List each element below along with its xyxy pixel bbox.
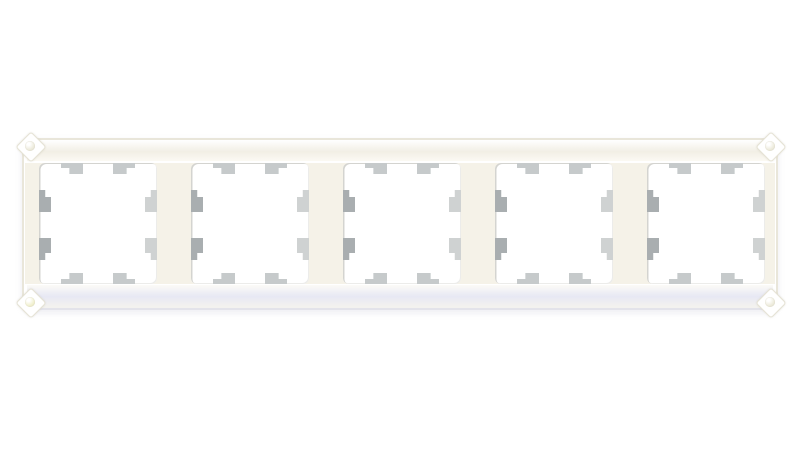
frame-opening (495, 163, 613, 284)
mounting-tab-bottom-right (569, 273, 591, 284)
mounting-tab-bottom-left (517, 273, 539, 284)
mounting-tab-bottom-right (265, 273, 287, 284)
corner-dimple-icon (765, 141, 775, 151)
mounting-tab-left-lower (39, 238, 51, 260)
corner-chamfer (15, 287, 46, 318)
mounting-tab-left-lower (647, 238, 659, 260)
mounting-tab-top-right (265, 163, 287, 174)
corner-dimple-icon (25, 141, 35, 151)
corner-dimple-icon (765, 297, 775, 307)
corner-dimple-icon (25, 297, 35, 307)
mounting-tab-left-upper (647, 190, 659, 212)
mounting-tab-left-upper (343, 190, 355, 212)
mounting-tab-left-upper (191, 190, 203, 212)
mounting-tab-right-upper (145, 190, 157, 212)
mounting-tab-right-upper (449, 190, 461, 212)
mounting-tab-right-lower (145, 238, 157, 260)
corner-ornament-top-right (755, 131, 785, 161)
mounting-tab-top-left (517, 163, 539, 174)
mounting-tab-top-right (569, 163, 591, 174)
mounting-tab-right-upper (601, 190, 613, 212)
mounting-tab-bottom-left (61, 273, 83, 284)
mounting-tab-left-upper (39, 190, 51, 212)
mounting-tab-left-lower (191, 238, 203, 260)
mounting-tab-top-right (417, 163, 439, 174)
corner-chamfer (755, 131, 786, 162)
product-photo (0, 0, 800, 450)
mounting-tab-right-lower (449, 238, 461, 260)
mounting-tab-top-left (669, 163, 691, 174)
mounting-tab-top-left (61, 163, 83, 174)
mounting-tab-left-lower (343, 238, 355, 260)
mounting-tab-bottom-right (721, 273, 743, 284)
frame-opening (343, 163, 461, 284)
corner-ornament-bottom-right (755, 287, 785, 317)
mounting-tab-right-upper (297, 190, 309, 212)
switch-frame (22, 138, 778, 310)
mounting-tab-bottom-left (365, 273, 387, 284)
mounting-tab-bottom-right (113, 273, 135, 284)
corner-ornament-top-left (15, 131, 45, 161)
mounting-tab-right-lower (297, 238, 309, 260)
mounting-tab-top-right (113, 163, 135, 174)
mounting-tab-right-lower (601, 238, 613, 260)
corner-chamfer (15, 131, 46, 162)
mounting-tab-left-upper (495, 190, 507, 212)
mounting-tab-top-left (365, 163, 387, 174)
corner-ornament-bottom-left (15, 287, 45, 317)
frame-opening (647, 163, 765, 284)
mounting-tab-bottom-left (669, 273, 691, 284)
mounting-tab-right-lower (753, 238, 765, 260)
mounting-tab-bottom-left (213, 273, 235, 284)
mounting-tab-top-left (213, 163, 235, 174)
mounting-tab-bottom-right (417, 273, 439, 284)
mounting-tab-top-right (721, 163, 743, 174)
mounting-tab-left-lower (495, 238, 507, 260)
corner-chamfer (755, 287, 786, 318)
frame-opening (191, 163, 309, 284)
mounting-tab-right-upper (753, 190, 765, 212)
frame-opening (39, 163, 157, 284)
